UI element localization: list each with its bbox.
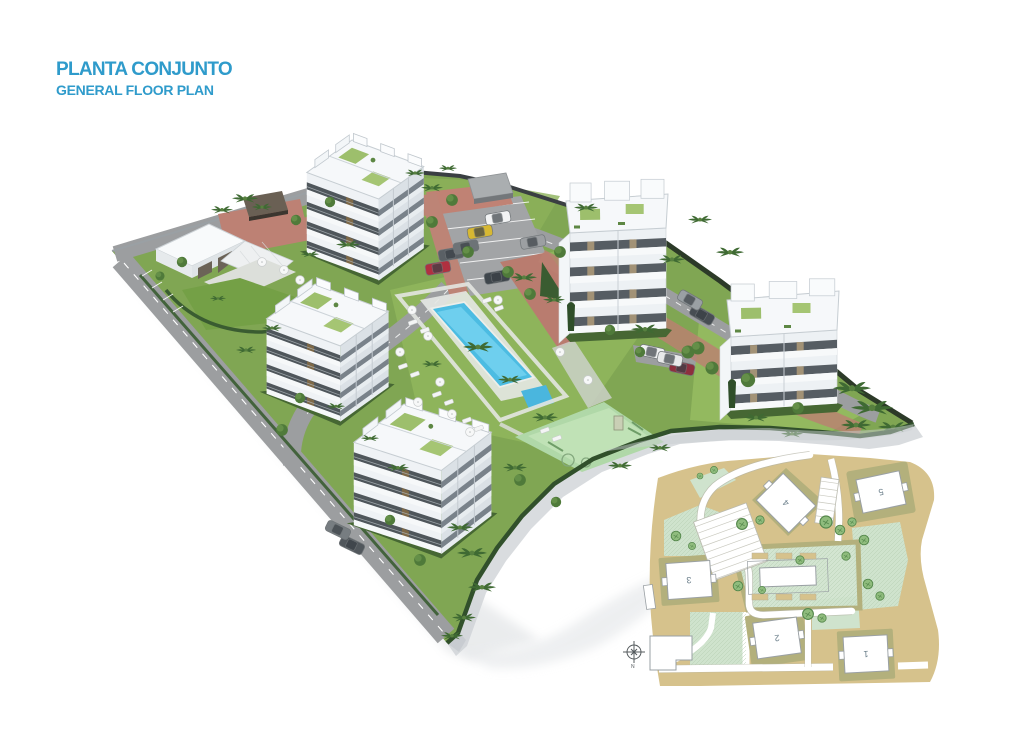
svg-text:3: 3 [686,575,692,585]
svg-text:1: 1 [863,649,869,659]
svg-text:PLANTA CONJUNTO: PLANTA CONJUNTO [56,59,232,80]
svg-text:GENERAL FLOOR PLAN: GENERAL FLOOR PLAN [56,82,214,98]
svg-text:N: N [631,664,635,670]
